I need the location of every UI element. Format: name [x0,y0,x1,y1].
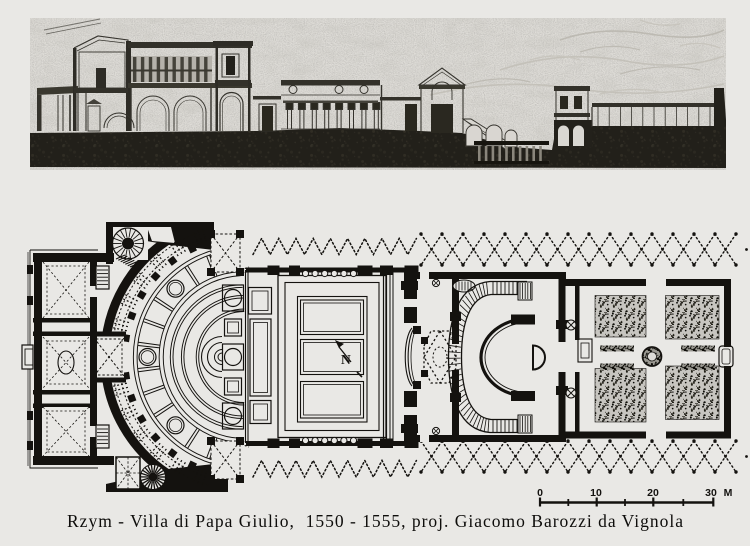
svg-text:30: 30 [705,487,717,499]
svg-text:0: 0 [537,487,543,499]
svg-text:10: 10 [590,487,602,499]
svg-text:Rzym - Villa di Papa Giulio,: Rzym - Villa di Papa Giulio, 1550 - 1555… [67,511,683,531]
svg-text:N: N [341,352,351,367]
svg-text:M: M [724,487,733,499]
svg-text:20: 20 [647,487,659,499]
